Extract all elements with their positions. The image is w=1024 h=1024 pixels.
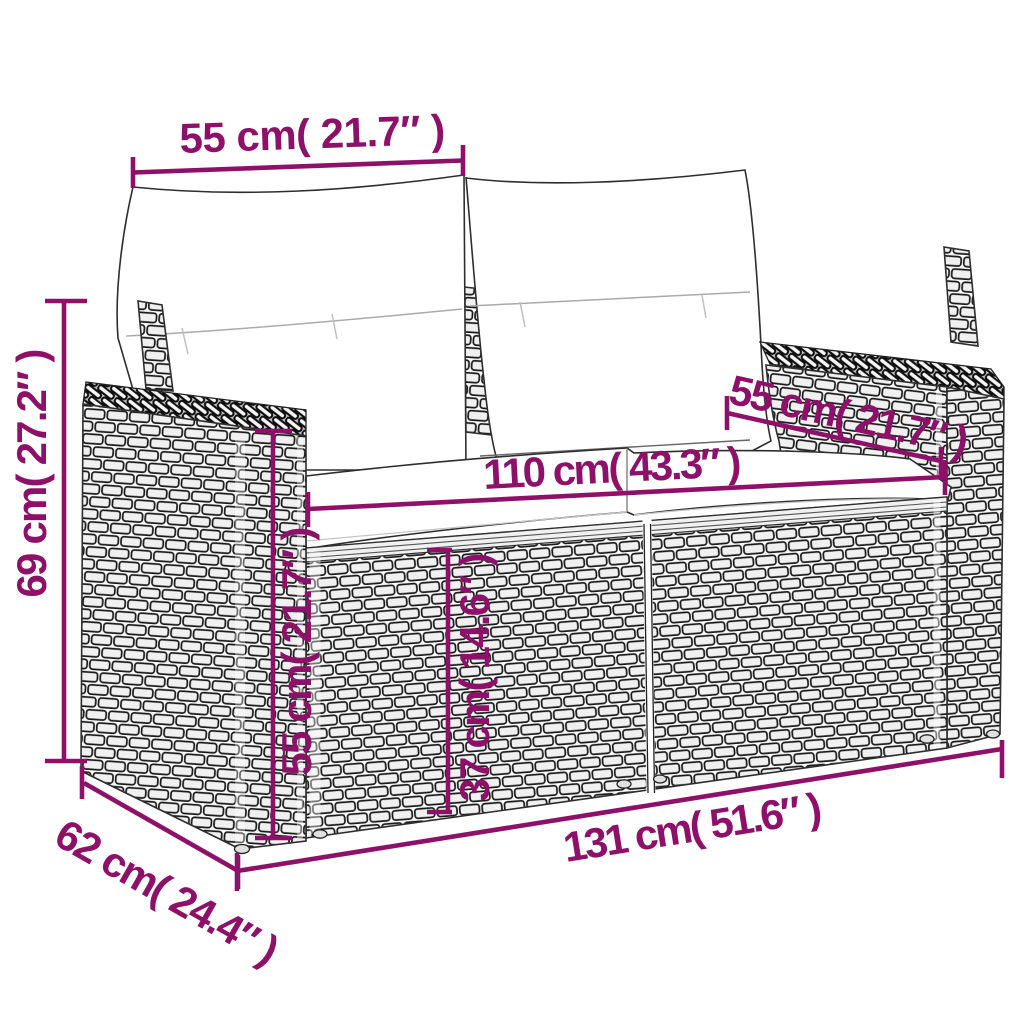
svg-text:69 cm( 27.2″ ): 69 cm( 27.2″ ): [8, 350, 55, 597]
svg-text:37 cm( 14.6″ ): 37 cm( 14.6″ ): [451, 554, 498, 801]
svg-text:55 cm( 21.7″ ): 55 cm( 21.7″ ): [179, 106, 446, 162]
svg-text:55 cm( 21.7″ ): 55 cm( 21.7″ ): [273, 528, 320, 775]
